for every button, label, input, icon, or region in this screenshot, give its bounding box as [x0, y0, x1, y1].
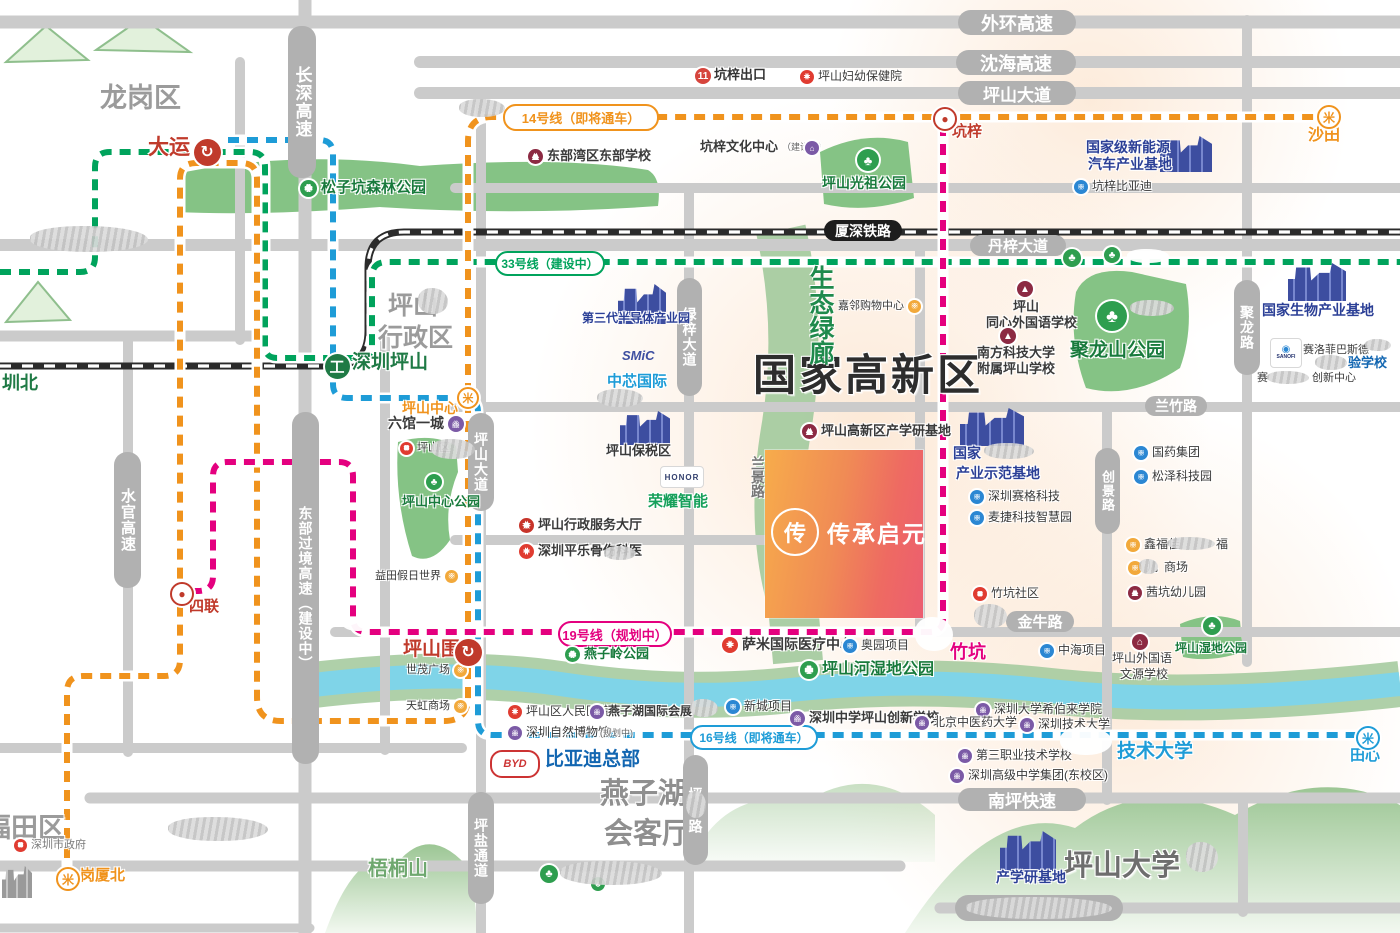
road-pill-shuiguan: 水官高速	[114, 452, 141, 588]
museum-icon: ⌂	[508, 726, 522, 740]
area-pingshan-university: 坪山大学	[1064, 842, 1180, 884]
erased-label-smudge	[30, 226, 148, 252]
station-pingshanwei-icon: ↻	[455, 639, 482, 666]
map-label: 验学校	[1348, 356, 1387, 370]
map-label: ⌂燕子湖国际会展	[590, 705, 692, 719]
map-label: 坪山外国语	[1112, 652, 1172, 665]
cross-icon: +	[519, 544, 534, 559]
label-text: 国药集团	[1152, 446, 1200, 459]
museum-icon: ⌂	[790, 711, 805, 726]
map-label: ♣坪山河湿地公园	[800, 661, 934, 679]
station-silian-icon: ●	[170, 582, 194, 606]
station-shenzhenbei-partial: 圳北	[2, 374, 38, 394]
shop-icon: ○	[454, 664, 467, 677]
erased-label-smudge	[604, 546, 636, 560]
tree-icon: ♣	[857, 149, 879, 171]
sanofi-logo-icon: ◉SANOFI	[1270, 338, 1302, 368]
map-label: ★坪山行政服务大厅	[519, 518, 642, 533]
label-text: 北京中医药大学	[933, 716, 1017, 729]
museum-icon: ⌂	[915, 716, 929, 730]
label-text: 天虹商场	[406, 700, 450, 712]
station-silian: 四联	[189, 599, 219, 616]
tree-icon: ♣	[426, 474, 442, 490]
district-pingshan-line2: 行政区	[378, 318, 453, 354]
map-label: 世茂广场○	[406, 664, 467, 677]
erased-label-smudge	[459, 99, 505, 117]
map-label: ⌂北京中医药大学	[915, 716, 1017, 730]
map-label: ▲坪山高新区产学研基地	[802, 424, 951, 439]
map-label: 天虹商场○	[406, 700, 467, 713]
pin-icon: ●	[400, 442, 413, 455]
map-label: (规划中)	[600, 729, 633, 739]
erased-label-smudge	[1186, 842, 1218, 872]
label-text: 坑梓出口	[714, 68, 766, 82]
map-label: 汽车产业基地	[1088, 157, 1172, 172]
map-label: 坑梓文化中心	[700, 140, 778, 154]
smic-logo-icon: SMiC	[622, 348, 655, 363]
map-label: 国家	[953, 446, 981, 461]
map-label: 六馆一城⌂	[388, 416, 464, 432]
school-icon: ▲	[1128, 586, 1142, 600]
project-logo-icon: 传	[771, 508, 819, 556]
map-label: 嘉邻购物中心○	[838, 300, 921, 313]
map-label: ⌂深圳高级中学集团(东校区)	[950, 769, 1108, 783]
map-label: ▲东部湾区东部学校	[528, 149, 651, 164]
map-label: 坪山	[1013, 300, 1039, 314]
byd-headquarters: 比亚迪总部	[545, 750, 640, 771]
dot-icon: ○	[1134, 446, 1148, 460]
label-text: 麦捷科技智慧园	[988, 511, 1072, 524]
honor-logo-icon: HONOR	[660, 466, 704, 488]
road-pill-chuangjinglu: 创景路	[1095, 448, 1120, 534]
map-label: ⌂深圳自然博物馆	[508, 726, 610, 740]
label-text: 商场	[1164, 561, 1188, 574]
pin-icon: ●	[14, 839, 27, 852]
tree-icon: ♣	[565, 647, 580, 662]
map-canvas: 传 传承启元 外环高速沈海高速坪山大道丹梓大道厦深铁路兰竹路金牛路南坪快速长深高…	[0, 0, 1400, 933]
station-shenzhenpingshan-icon: 工	[325, 354, 350, 379]
dot-icon: ○	[970, 511, 984, 525]
road-pill-dongbuguojing: 东部过境高速（建设中）	[292, 412, 319, 764]
shop-icon: ○	[908, 300, 921, 313]
map-label: ⌂第三职业技术学校	[958, 749, 1072, 763]
shop-icon: ○	[445, 570, 458, 583]
map-label: ○新城项目	[726, 700, 792, 714]
label-text: 深圳自然博物馆	[526, 726, 610, 739]
map-label: 产业示范基地	[956, 466, 1040, 481]
line-label-33: 33号线（建设中）	[495, 251, 605, 276]
station-zhukeng: 竹坑	[950, 643, 986, 663]
label-text: 茜坑幼儿园	[1146, 586, 1206, 599]
label-text: 坑梓比亚迪	[1092, 180, 1152, 193]
project-name: 传承启元	[827, 515, 927, 549]
wutong-mountain: 梧桐山	[368, 858, 428, 880]
label-text: 燕子湖国际会展	[608, 705, 692, 718]
map-label: ○麦捷科技智慧园	[970, 511, 1072, 525]
map-label: 商场	[1164, 561, 1188, 574]
star-icon: ★	[519, 518, 534, 533]
museum-icon: ⌂	[1020, 718, 1034, 732]
label-text: 东部湾区东部学校	[547, 149, 651, 163]
station-shatian-icon: 米	[1317, 105, 1341, 129]
map-label: 聚龙山公园	[1070, 341, 1165, 362]
label-text: 深圳市政府	[31, 839, 86, 851]
map-label: ○坑梓比亚迪	[1074, 180, 1152, 194]
label-text: 产业示范基地	[956, 466, 1040, 481]
map-label: 益田假日世界○	[375, 570, 458, 583]
erased-label-smudge	[597, 389, 643, 407]
road-pill-julonglu: 聚龙路	[1234, 280, 1260, 375]
tree-icon: ♣	[300, 180, 317, 197]
map-label: ▲茜坑幼儿园	[1128, 586, 1206, 600]
map-label: ●深圳市政府	[14, 839, 86, 852]
label-text: 聚龙山公园	[1070, 341, 1165, 362]
dot-icon: ○	[1074, 180, 1088, 194]
station-dayun-icon: ↻	[194, 139, 221, 166]
museum-icon: ⌂	[448, 416, 464, 432]
label-text: 国家	[953, 446, 981, 461]
station-jishudaxue: 技术大学	[1117, 742, 1193, 763]
map-label: 国家级新能源	[1086, 140, 1170, 155]
road-pill-lvzidadao: 绿梓大道	[677, 278, 702, 396]
label-text: 竹坑社区	[991, 587, 1039, 600]
map-label: ♣松子坑森林公园	[300, 180, 426, 197]
tree-icon: ♣	[1104, 247, 1120, 263]
cross-icon: +	[508, 705, 522, 719]
map-label: 坪山中心公园	[402, 495, 480, 509]
map-label: 南方科技大学	[977, 346, 1055, 360]
map-label: 福	[1216, 538, 1228, 551]
label-text: 坪山中心公园	[402, 495, 480, 509]
label-text: 梧桐山	[368, 858, 428, 880]
map-label: +萨米国际医疗中心	[722, 637, 854, 653]
erased-label-smudge	[343, 618, 373, 631]
cross-icon: +	[722, 637, 738, 653]
kengzi-exit-icon: 11	[695, 68, 711, 84]
label-text: 奥园项目	[861, 639, 909, 652]
line-label-16: 16号线（即将通车）	[690, 725, 818, 750]
museum-icon: ⌂	[805, 141, 819, 155]
project-block: 传 传承启元	[765, 450, 923, 618]
museum-icon: ⌂	[590, 705, 604, 719]
map-label: 附属坪山学校	[977, 362, 1055, 376]
tree-icon: ♣	[800, 661, 818, 679]
station-shenzhenpingshan: 深圳坪山	[352, 353, 428, 374]
erased-label-smudge	[1130, 300, 1174, 316]
school-icon: ▲	[1000, 328, 1016, 344]
shop-icon: ○	[454, 700, 467, 713]
school-icon: ▲	[802, 424, 817, 439]
erased-label-smudge	[984, 443, 1034, 459]
label-text: 深圳坪山	[352, 353, 428, 374]
line-label-19: 19号线（规划中）	[558, 621, 672, 647]
label-text: 坪山河湿地公园	[822, 661, 934, 679]
map-label: 创新中心	[1312, 372, 1356, 384]
railway-pill-xiashen: 厦深铁路	[824, 220, 902, 241]
label-text: 萨米国际医疗中心	[742, 637, 854, 652]
station-tianxin: 田心	[1350, 748, 1380, 765]
museum-icon: ⌂	[950, 769, 964, 783]
map-label: +坪山妇幼保健院	[800, 70, 902, 84]
label-text: 验学校	[1348, 356, 1387, 370]
label-text: 坪山外国语	[1112, 652, 1172, 665]
erased-label-smudge	[915, 617, 953, 651]
label-text: 新城项目	[744, 700, 792, 713]
label-text: 文源学校	[1120, 668, 1168, 681]
station-kengzi-icon: ●	[933, 107, 957, 131]
label-text: 中海项目	[1058, 644, 1106, 657]
tree-icon: ♣	[1203, 617, 1221, 635]
map-label: ○国药集团	[1134, 446, 1200, 460]
road-pill-pingshandadao: 坪山大道	[958, 81, 1076, 105]
map-label: 第三代半导体产业园	[582, 312, 690, 325]
label-text: 荣耀智能	[648, 494, 708, 511]
erased-label-smudge	[1365, 339, 1391, 351]
label-text: 沙田	[1308, 127, 1340, 145]
station-shatian: 沙田	[1308, 127, 1340, 145]
label-text: 创新中心	[1312, 372, 1356, 384]
label-text: 汽车产业基地	[1088, 157, 1172, 172]
road-pill-pingyan: 坪盐通道	[468, 792, 494, 904]
road-pill-waihuan: 外环高速	[958, 10, 1076, 35]
label-text: 坪山	[1013, 300, 1039, 314]
station-gangxiabei: 岗厦北	[80, 868, 125, 885]
dot-icon: ○	[726, 700, 740, 714]
station-kengzi: 坑梓	[952, 124, 982, 141]
erased-label-smudge	[1315, 355, 1347, 370]
dot-icon: ○	[843, 639, 857, 653]
station-tianxin-icon: 米	[1356, 726, 1380, 750]
label-text: 第三职业技术学校	[976, 749, 1072, 762]
erased-label-smudge	[168, 817, 268, 841]
label-text: 坪山行政服务大厅	[538, 518, 642, 532]
label-text: (规划中)	[600, 729, 633, 739]
label-text: 坪山妇幼保健院	[818, 70, 902, 83]
label-text: 坪山湿地公园	[1175, 642, 1247, 655]
label-text: 比亚迪总部	[545, 750, 640, 771]
label-text: 深圳赛格科技	[988, 490, 1060, 503]
label-text: 四联	[189, 599, 219, 616]
label-text: 松泽科技园	[1152, 470, 1212, 483]
label-text: 附属坪山学校	[977, 362, 1055, 376]
erased-label-smudge	[431, 439, 475, 459]
label-text: 岗厦北	[80, 868, 125, 885]
road-pill-jinniulu: 金牛路	[1006, 611, 1074, 632]
label-text: 田心	[1350, 748, 1380, 765]
map-label: ○中海项目	[1040, 644, 1106, 658]
map-label: 荣耀智能	[648, 494, 708, 511]
label-text: 世茂广场	[406, 664, 450, 676]
label-text: 六馆一城	[388, 416, 444, 431]
museum-icon: ⌂	[1132, 634, 1148, 650]
label-text: 坪山高新区产学研基地	[821, 424, 951, 438]
erased-label-smudge	[560, 861, 662, 885]
label-text: 坑梓文化中心	[700, 140, 778, 154]
erased-label-smudge	[1060, 727, 1112, 755]
erased-label-smudge	[1127, 249, 1169, 263]
pin-icon: ●	[973, 587, 987, 601]
label-text: 南方科技大学	[977, 346, 1055, 360]
erased-label-smudge	[1267, 371, 1309, 384]
byd-logo-icon: BYD	[490, 750, 540, 778]
line-label-14: 14号线（即将通车）	[503, 104, 659, 131]
map-label: 坪山保税区	[606, 444, 671, 458]
road-pill-shenhai: 沈海高速	[956, 50, 1076, 75]
label-text: 竹坑	[950, 643, 986, 663]
station-pingshanzhongxin-icon: 米	[457, 387, 479, 409]
label-text: 圳北	[2, 374, 38, 394]
label-text: 深圳高级中学集团(东校区)	[968, 769, 1108, 782]
map-label: ○松泽科技园	[1134, 470, 1212, 484]
label-text: 松子坑森林公园	[321, 180, 426, 197]
tree-icon: ♣	[540, 865, 558, 883]
cross-icon: +	[800, 70, 814, 84]
kengzi-exit: 坑梓出口	[714, 68, 766, 82]
map-label: 产学研基地	[996, 870, 1066, 885]
label-text: 燕子岭公园	[584, 647, 649, 661]
tree-icon: ♣	[1097, 301, 1127, 331]
erased-label-smudge	[686, 791, 706, 818]
label-text: 福	[1216, 538, 1228, 551]
area-national-hightech-zone: 国家高新区	[753, 341, 983, 403]
tree-icon: ♣	[1063, 249, 1081, 267]
label-text: 嘉邻购物中心	[838, 300, 904, 312]
dot-icon: ○	[1134, 470, 1148, 484]
museum-icon: ⌂	[958, 749, 972, 763]
label-text: 同心外国语学校	[986, 316, 1077, 330]
school-icon: ▲	[528, 149, 543, 164]
road-pill-lanzhulu: 兰竹路	[1145, 396, 1207, 416]
erased-label-smudge	[690, 699, 718, 717]
label-text: 大运	[148, 136, 190, 159]
label-text: 国家级新能源	[1086, 140, 1170, 155]
erased-label-smudge	[418, 288, 448, 314]
road-pill-danzidadao: 丹梓大道	[970, 235, 1066, 256]
label-text: 第三代半导体产业园	[582, 312, 690, 325]
eco-green-corridor: 生态绿廊	[802, 265, 838, 365]
dot-icon: ○	[1040, 644, 1054, 658]
map-label: ○深圳赛格科技	[970, 490, 1060, 504]
district-longgang: 龙岗区	[100, 76, 181, 115]
shop-icon: ○	[1126, 538, 1140, 552]
label-text: 技术大学	[1117, 742, 1193, 763]
erased-label-smudge	[974, 604, 1007, 628]
label-text: 坑梓	[952, 124, 982, 141]
map-label: 坪山湿地公园	[1175, 642, 1247, 655]
station-gangxiabei-icon: 米	[56, 867, 80, 891]
map-label: ○奥园项目	[843, 639, 909, 653]
map-label: 国家生物产业基地	[1262, 303, 1374, 318]
label-text: 坪山围	[403, 640, 460, 661]
label-text: 益田假日世界	[375, 570, 441, 582]
area-yanzihu: 燕子湖	[600, 770, 687, 812]
station-pingshanwei: 坪山围	[403, 640, 460, 661]
map-label: 同心外国语学校	[986, 316, 1077, 330]
map-label: 文源学校	[1120, 668, 1168, 681]
label-text: 坪山光祖公园	[822, 176, 906, 191]
area-huiketing: 会客厅	[604, 810, 691, 852]
erased-label-smudge	[1139, 559, 1158, 574]
station-dayun: 大运	[148, 136, 190, 159]
label-text: 产学研基地	[996, 870, 1066, 885]
map-label: ●竹坑社区	[973, 587, 1039, 601]
label-text: 坪山保税区	[606, 444, 671, 458]
map-label: ♣燕子岭公园	[565, 647, 649, 662]
erased-label-smudge	[1167, 537, 1215, 550]
erased-label-smudge	[966, 897, 1112, 919]
school-icon: ▲	[1017, 281, 1033, 297]
dot-icon: ○	[970, 490, 984, 504]
road-pill-nanping: 南坪快速	[958, 788, 1086, 811]
map-label: 坪山光祖公园	[822, 176, 906, 191]
road-pill-changshen: 长深高速	[288, 26, 316, 178]
label-text: 国家生物产业基地	[1262, 303, 1374, 318]
